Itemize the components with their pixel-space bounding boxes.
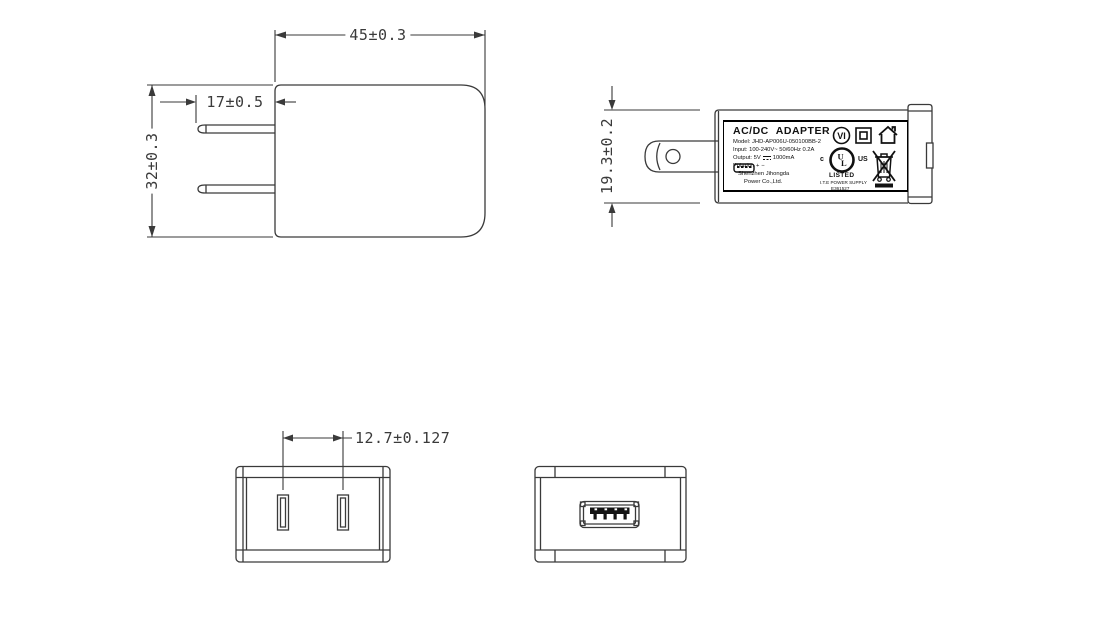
- usb-port: [580, 502, 639, 528]
- right-blade-slot: [338, 495, 349, 530]
- front-body-outline: [275, 85, 485, 237]
- dc-voltage-icon: [763, 156, 771, 161]
- blade-spacing-dimension: [283, 431, 352, 490]
- label-title: AC/DC ADAPTER: [733, 125, 830, 137]
- left-blade-slot: [278, 495, 289, 530]
- front-top-prong: [198, 125, 275, 133]
- front-view-linework: [147, 30, 485, 237]
- dimension-blade-spacing: 12.7±0.127: [355, 430, 450, 446]
- side-prong: [645, 141, 718, 172]
- usb-face-outline: [535, 467, 686, 563]
- ul-file: E361527: [831, 186, 849, 191]
- dimension-height: 32±0.3: [144, 128, 160, 193]
- dimension-prong-length: 17±0.5: [202, 94, 267, 110]
- ul-c: c: [820, 156, 824, 163]
- label-polarity: Polarity: + −: [733, 163, 765, 169]
- label-company-1: Shenzhen Jihongda: [738, 171, 789, 177]
- svg-text:VI: VI: [837, 131, 846, 141]
- prong-hole: [666, 150, 680, 164]
- dimension-depth: 19.3±0.2: [599, 114, 615, 198]
- svg-text:L: L: [841, 158, 847, 168]
- polarity-plus: +: [756, 163, 759, 169]
- plug-face-linework: [236, 431, 390, 562]
- technical-drawing-canvas: 45±0.3 17±0.5 32±0.3 19.3±0.2 12.7±0.127…: [0, 0, 1100, 621]
- label-output: Output: 5V 1000mA: [733, 155, 794, 161]
- side-depth-dimension: [604, 86, 700, 227]
- usb-face-linework: [535, 467, 686, 563]
- ul-listed: LISTED: [829, 172, 855, 179]
- plug-face-outline: [236, 467, 390, 563]
- usb-contact-pins: [594, 514, 627, 520]
- front-bottom-prong: [198, 185, 275, 193]
- label-input: Input: 100-240V~ 50/60Hz 0.2A: [733, 147, 814, 153]
- drawing-linework: [0, 0, 1100, 621]
- ul-type: I.T.E POWER SUPPLY: [820, 180, 867, 185]
- ul-us: US: [858, 156, 868, 163]
- product-label: AC/DC ADAPTER Model: JHD-AP006U-050100BB…: [723, 120, 908, 192]
- label-company-2: Power Co.,Ltd.: [744, 179, 782, 185]
- polarity-minus: −: [761, 163, 764, 169]
- label-model: Model: JHD-AP006U-050100BB-2: [733, 139, 821, 145]
- dimension-width: 45±0.3: [345, 27, 410, 43]
